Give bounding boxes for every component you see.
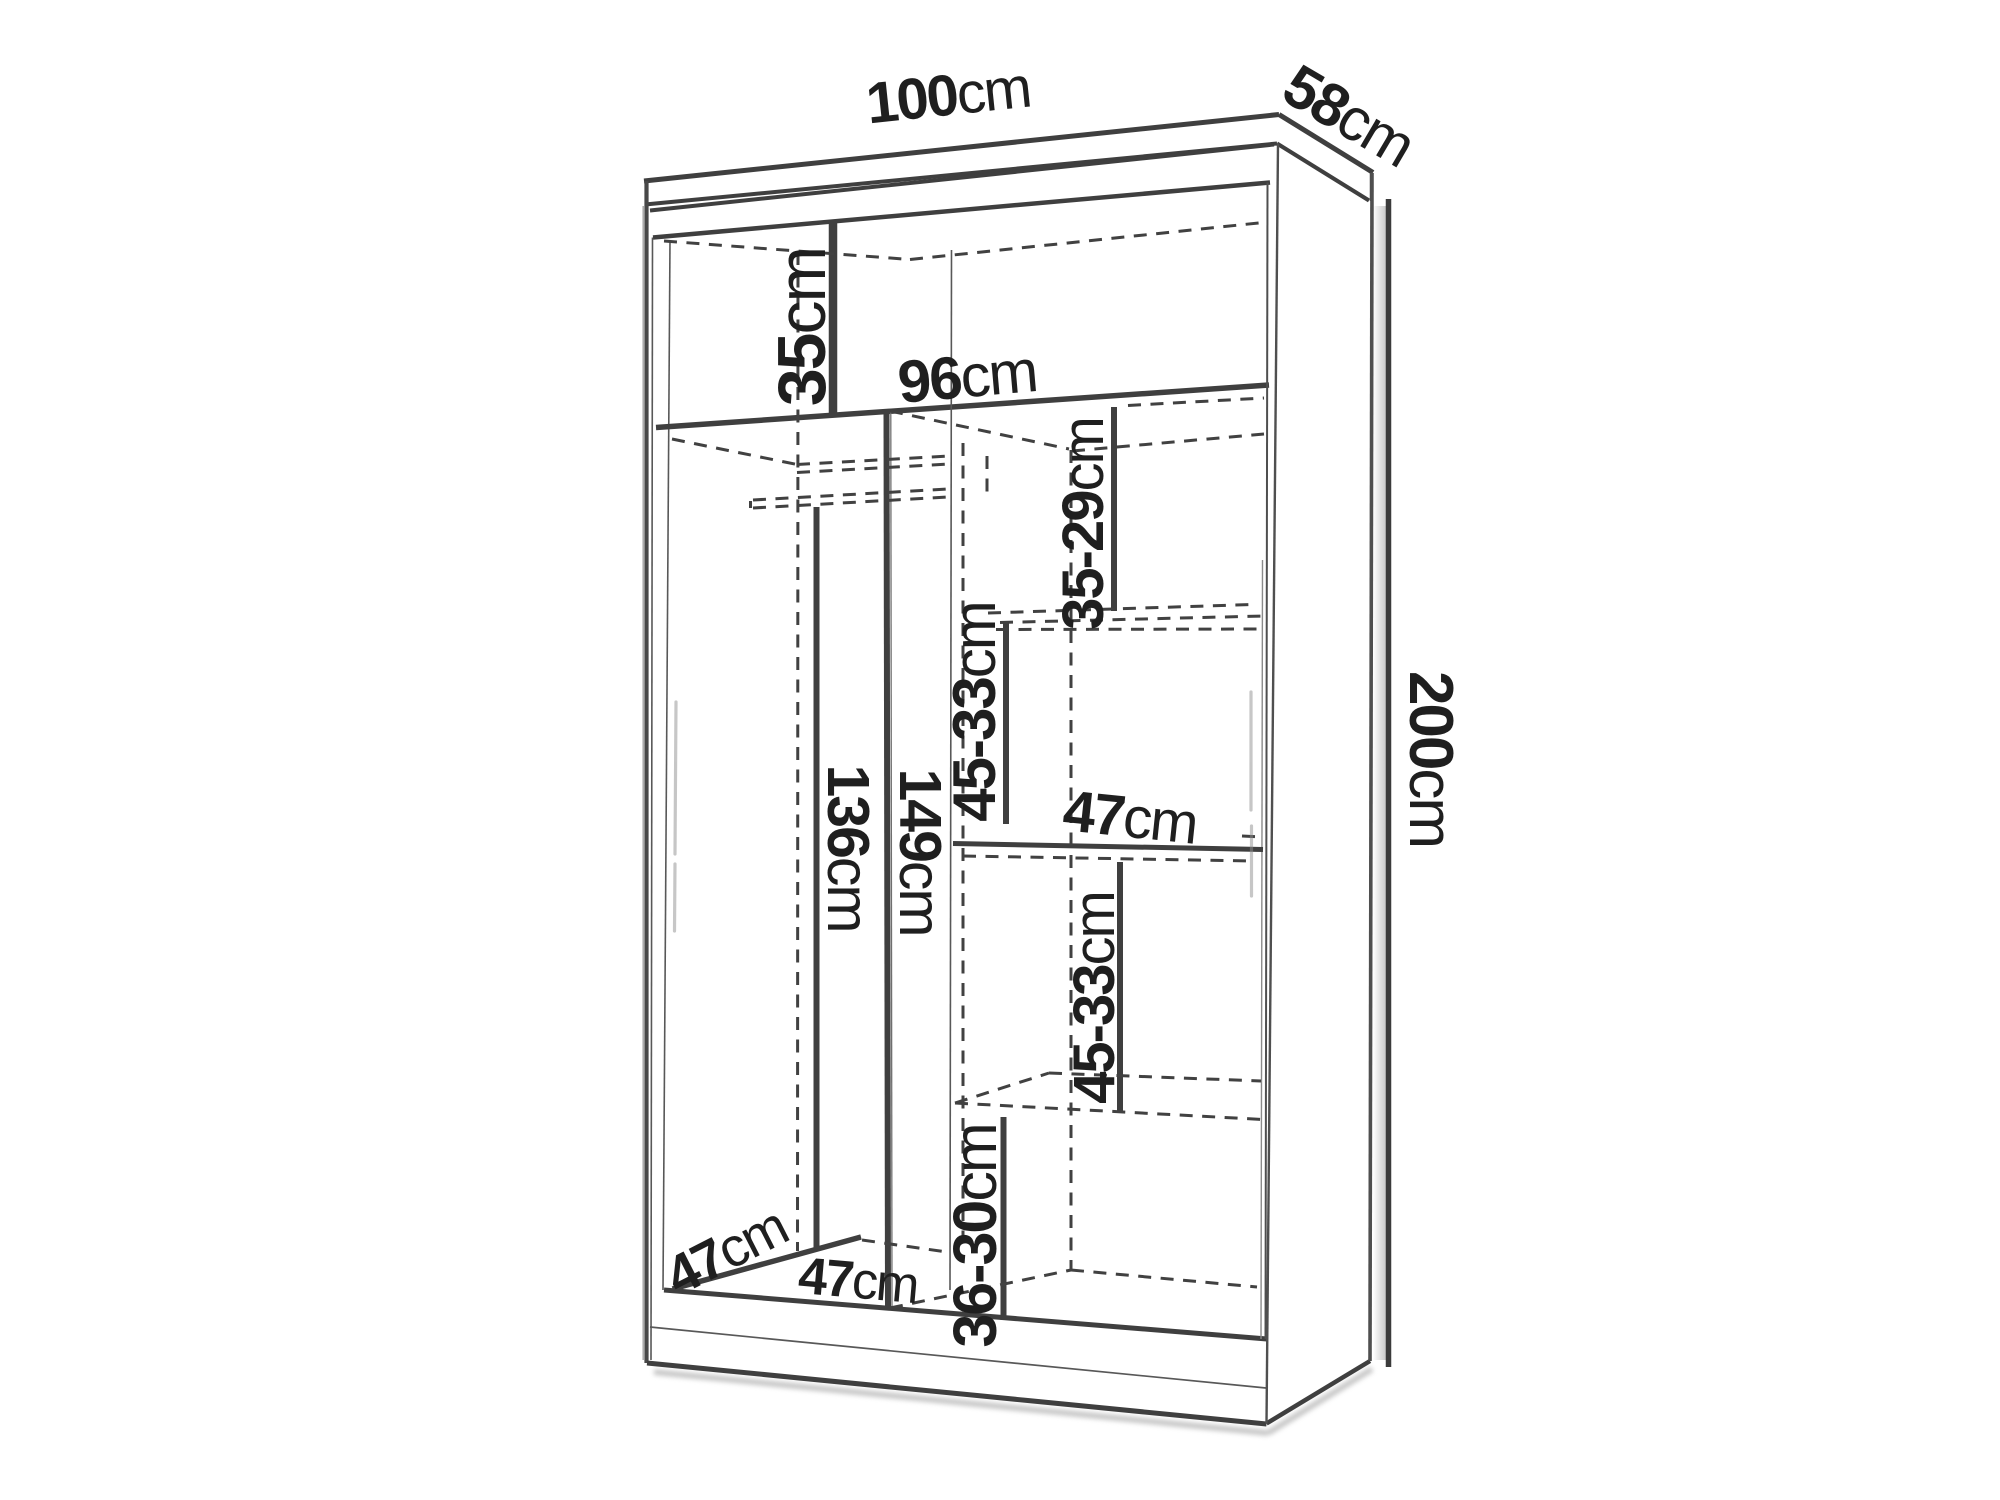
svg-text:100cm: 100cm <box>863 54 1033 136</box>
svg-text:200cm: 200cm <box>1397 671 1466 847</box>
svg-text:47cm: 47cm <box>796 1247 920 1315</box>
svg-text:45-33cm: 45-33cm <box>1062 892 1127 1104</box>
svg-text:47cm: 47cm <box>1060 778 1200 857</box>
svg-text:149cm: 149cm <box>887 768 953 935</box>
svg-text:47cm: 47cm <box>656 1195 797 1308</box>
svg-text:136cm: 136cm <box>815 764 881 931</box>
svg-text:36-30cm: 36-30cm <box>941 1124 1009 1347</box>
svg-text:35-29cm: 35-29cm <box>1051 418 1116 630</box>
svg-text:96cm: 96cm <box>895 337 1039 416</box>
svg-text:35cm: 35cm <box>764 248 840 406</box>
